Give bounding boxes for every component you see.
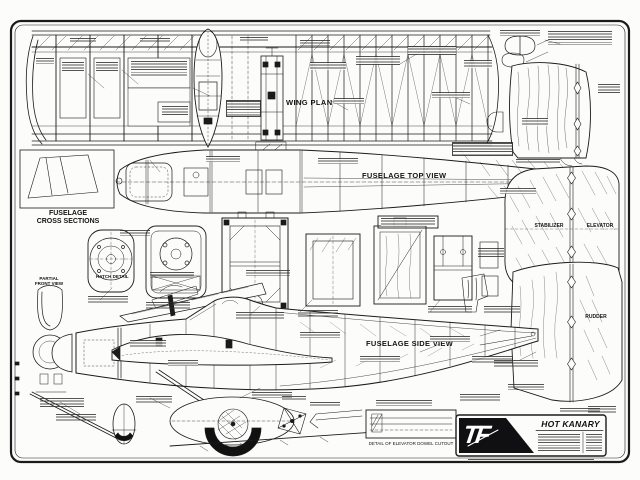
annotation-note: [150, 272, 194, 278]
wing-plan-label: WING PLAN: [286, 99, 333, 108]
annotation-note: [494, 360, 538, 368]
annotation-note: [168, 360, 198, 366]
annotation-note: [428, 306, 472, 314]
annotation-note: [452, 142, 513, 156]
annotation-note: [478, 248, 504, 258]
fuselage-top-view-label: FUSELAGE TOP VIEW: [362, 172, 446, 181]
annotation-note: [538, 434, 580, 451]
fuselage-cross-sections-label: FUSELAGE CROSS SECTIONS: [22, 210, 114, 226]
annotation-note: [334, 98, 364, 104]
annotation-note: [62, 62, 84, 71]
annotation-note: [282, 396, 306, 401]
annotation-note: [598, 84, 620, 94]
top-flite-logo: TF: [461, 419, 526, 453]
annotation-note: [460, 394, 500, 402]
annotation-note: [586, 434, 602, 451]
rudder-label: RUDDER: [578, 315, 614, 321]
annotation-note: [56, 414, 96, 422]
annotation-note: [318, 158, 358, 164]
annotation-note: [226, 100, 261, 117]
annotation-note: [36, 58, 54, 64]
annotation-note: [240, 37, 268, 41]
elevator-dowel-detail-caption: DETAIL OF ELEVATOR DOWEL CUTOUT: [352, 441, 470, 446]
annotation-note: [464, 60, 492, 68]
annotation-note: [146, 302, 190, 310]
annotation-note: [432, 92, 470, 98]
annotation-note: [40, 398, 84, 408]
annotation-note: [136, 396, 172, 404]
plan-title: HOT KANARY: [537, 419, 604, 429]
annotation-note: [356, 56, 400, 65]
annotation-note: [310, 62, 346, 70]
annotation-note: [376, 400, 432, 406]
annotation-note: [484, 306, 520, 314]
annotation-note: [310, 402, 340, 407]
annotation-note: [300, 332, 340, 338]
annotation-note: [430, 336, 470, 342]
partial-front-view-label: PARTIAL FRONT VIEW: [28, 276, 70, 286]
annotation-note: [206, 156, 240, 162]
annotation-note: [560, 408, 600, 413]
annotation-note: [500, 188, 536, 194]
annotation-note: [522, 118, 548, 126]
plan-sheet: WING PLAN FUSELAGE TOP VIEW FUSELAGE CRO…: [0, 0, 640, 480]
cross-sections-box: [20, 150, 114, 208]
annotation-note: [468, 459, 594, 462]
annotation-note: [360, 356, 400, 362]
stabilizer-label: STABILIZER: [527, 224, 571, 230]
annotation-note: [130, 340, 166, 348]
annotation-note: [508, 384, 544, 390]
annotation-note: [500, 30, 540, 36]
elevator-label: ELEVATOR: [580, 224, 620, 230]
plan-linework: [0, 0, 640, 480]
annotation-note: [131, 61, 187, 77]
annotation-note: [96, 62, 118, 71]
annotation-note: [300, 40, 330, 46]
annotation-note: [162, 106, 188, 116]
annotation-note: [70, 38, 96, 42]
fin-plan: [510, 63, 591, 158]
annotation-note: [236, 312, 284, 320]
hatch-detail-label: HATCH DETAIL: [96, 274, 129, 279]
annotation-note: [381, 218, 435, 226]
annotation-note: [516, 159, 560, 164]
annotation-note: [548, 31, 612, 45]
annotation-note: [88, 296, 128, 304]
annotation-note: [140, 38, 170, 42]
annotation-note: [408, 46, 456, 55]
annotation-note: [120, 230, 150, 236]
annotation-note: [246, 270, 290, 276]
annotation-note: [298, 310, 338, 318]
